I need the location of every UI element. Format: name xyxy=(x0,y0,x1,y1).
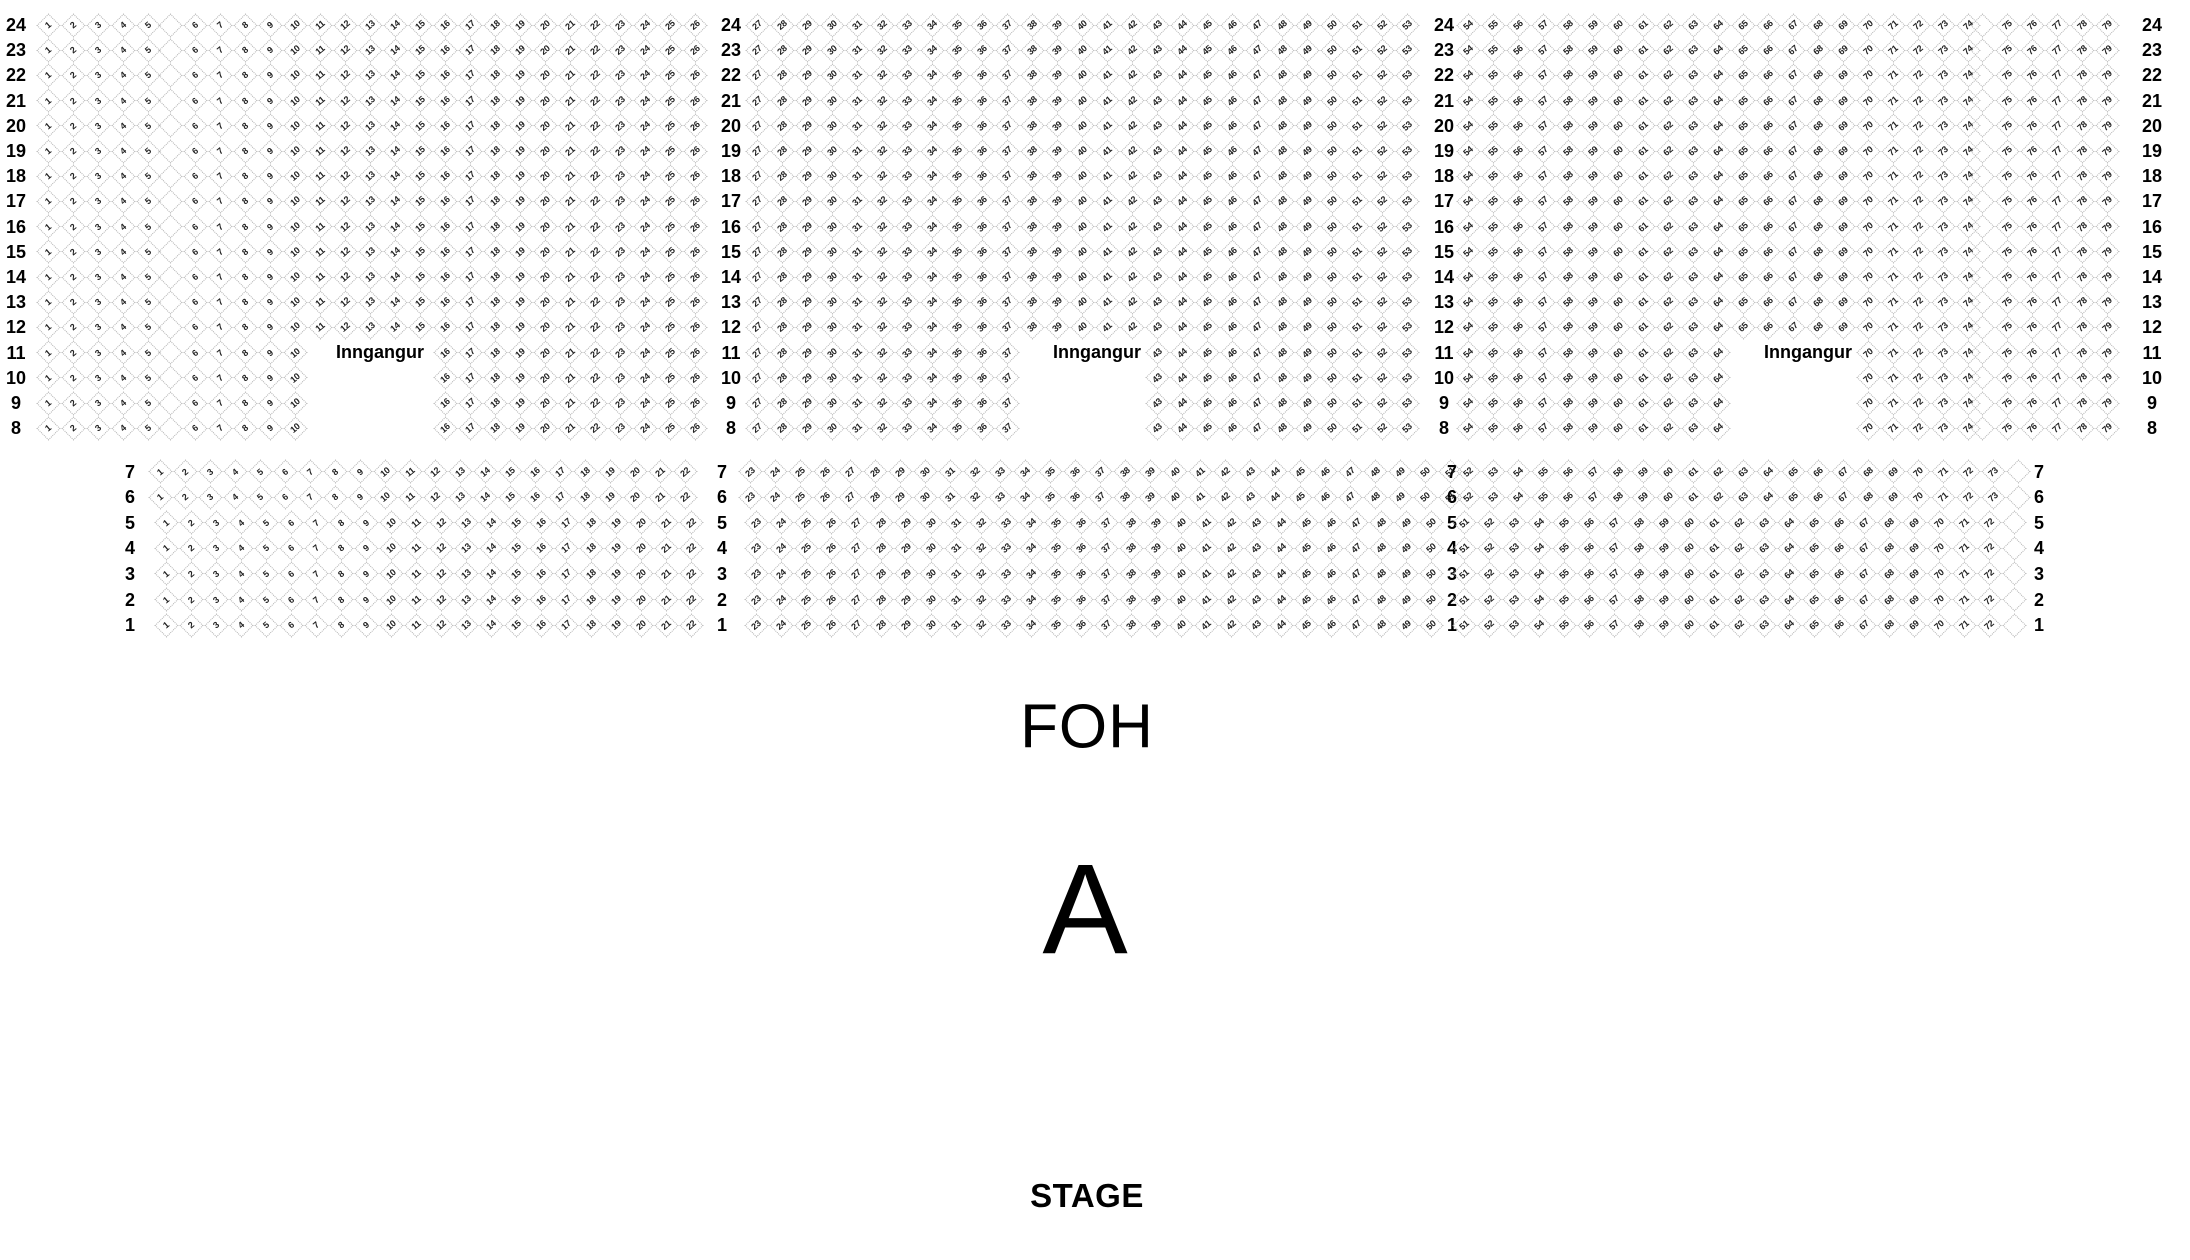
seat[interactable]: 60 xyxy=(1656,485,1680,509)
seat[interactable]: 52 xyxy=(1456,485,1480,509)
seat[interactable]: 13 xyxy=(358,315,382,339)
entrance-label: Inngangur xyxy=(1022,342,1172,363)
empty-seat-outline xyxy=(2006,485,2030,509)
seat[interactable]: 45 xyxy=(1195,416,1219,440)
empty-seat-outline xyxy=(158,164,182,188)
empty-seat-outline xyxy=(1970,89,1994,113)
seat[interactable]: 15 xyxy=(498,485,522,509)
seat[interactable]: 22 xyxy=(583,416,607,440)
seat[interactable]: 52 xyxy=(1370,416,1394,440)
seat-diamond xyxy=(2002,511,2026,535)
seat[interactable]: 63 xyxy=(1681,416,1705,440)
seat-diamond xyxy=(158,139,182,163)
seat[interactable]: 20 xyxy=(533,416,557,440)
seat[interactable]: 72 xyxy=(1956,485,1980,509)
seat[interactable]: 18 xyxy=(573,485,597,509)
seat[interactable]: 9 xyxy=(258,416,282,440)
empty-seat-outline xyxy=(158,366,182,390)
seat[interactable]: 35 xyxy=(1038,485,1062,509)
row-label: 14 xyxy=(2134,267,2170,287)
seat[interactable]: 51 xyxy=(1345,416,1369,440)
seat[interactable]: 34 xyxy=(920,416,944,440)
seat[interactable]: 23 xyxy=(738,485,762,509)
row-label: 13 xyxy=(2134,292,2170,312)
seat-diamond xyxy=(158,189,182,213)
seat[interactable]: 72 xyxy=(1906,416,1930,440)
seat[interactable]: 2 xyxy=(173,485,197,509)
seat[interactable]: 75 xyxy=(1995,416,2019,440)
seat-diamond xyxy=(1970,215,1994,239)
seat[interactable]: 64 xyxy=(1706,416,1730,440)
seat-diamond xyxy=(1970,265,1994,289)
seat[interactable]: 47 xyxy=(1245,416,1269,440)
seat[interactable]: 66 xyxy=(1806,485,1830,509)
seat[interactable]: 50 xyxy=(1320,416,1344,440)
empty-seat-outline xyxy=(1970,139,1994,163)
seat[interactable]: 15 xyxy=(408,315,432,339)
seat-diamond xyxy=(2002,536,2026,560)
row-label: 21 xyxy=(0,91,34,111)
seat-map: 2424242412345678910111213141516171819202… xyxy=(0,0,2190,1260)
seat-diamond xyxy=(158,416,182,440)
seat-diamond xyxy=(158,89,182,113)
seat[interactable]: 22 xyxy=(673,485,697,509)
row-label: 19 xyxy=(2134,141,2170,161)
seat-number: 10 xyxy=(278,411,312,445)
seat[interactable]: 78 xyxy=(2070,416,2094,440)
seat[interactable]: 67 xyxy=(1781,315,1805,339)
seat[interactable]: 10 xyxy=(283,416,307,440)
seat[interactable]: 32 xyxy=(963,485,987,509)
seat[interactable]: 49 xyxy=(1295,416,1319,440)
seat[interactable]: 62 xyxy=(1706,485,1730,509)
seat[interactable]: 24 xyxy=(763,485,787,509)
row-label: 8 xyxy=(2134,418,2170,438)
seat-diamond xyxy=(158,13,182,37)
row-label: 12 xyxy=(0,317,34,337)
seat-diamond xyxy=(2006,459,2030,483)
seat[interactable]: 63 xyxy=(1731,485,1755,509)
seat[interactable]: 48 xyxy=(1363,485,1387,509)
seat-diamond xyxy=(158,114,182,138)
seat-diamond xyxy=(1970,114,1994,138)
seat[interactable]: 58 xyxy=(1606,485,1630,509)
empty-seat-outline xyxy=(158,13,182,37)
seat[interactable]: 8 xyxy=(233,416,257,440)
seat[interactable]: 45 xyxy=(1288,485,1312,509)
empty-seat-outline xyxy=(1970,215,1994,239)
row-label: 5 xyxy=(2021,513,2057,533)
seat[interactable]: 38 xyxy=(1113,485,1137,509)
seat[interactable]: 39 xyxy=(1045,315,1069,339)
row-label: 19 xyxy=(0,141,34,161)
seat-diamond xyxy=(1970,38,1994,62)
seat[interactable]: 27 xyxy=(745,416,769,440)
seat[interactable]: 47 xyxy=(1338,485,1362,509)
seat[interactable]: 59 xyxy=(1631,485,1655,509)
row-label: 7 xyxy=(112,462,148,482)
seat[interactable]: 69 xyxy=(1881,485,1905,509)
seat[interactable]: 13 xyxy=(448,485,472,509)
seat[interactable]: 14 xyxy=(473,485,497,509)
row-label: 24 xyxy=(0,15,34,35)
empty-seat-outline xyxy=(1970,290,1994,314)
seat[interactable]: 56 xyxy=(1556,485,1580,509)
row-label: 5 xyxy=(112,513,148,533)
empty-seat-outline xyxy=(1970,341,1994,365)
seat[interactable]: 50 xyxy=(1413,485,1437,509)
seat[interactable]: 53 xyxy=(1395,416,1419,440)
row-label: 12 xyxy=(2134,317,2170,337)
seat-diamond xyxy=(1970,391,1994,415)
seat[interactable]: 56 xyxy=(1506,416,1530,440)
empty-seat-outline xyxy=(1970,38,1994,62)
row-label: 15 xyxy=(0,242,34,262)
seat[interactable]: 1 xyxy=(148,485,172,509)
seat[interactable]: 16 xyxy=(433,416,457,440)
seat[interactable]: 12 xyxy=(423,485,447,509)
seat[interactable]: 42 xyxy=(1120,315,1144,339)
seat-diamond xyxy=(1970,240,1994,264)
seat[interactable]: 12 xyxy=(333,315,357,339)
empty-seat-outline xyxy=(1970,366,1994,390)
seat-diamond xyxy=(158,366,182,390)
row-label: 20 xyxy=(0,116,34,136)
empty-seat-outline xyxy=(158,315,182,339)
seat[interactable]: 40 xyxy=(1070,315,1094,339)
empty-seat-outline xyxy=(158,38,182,62)
seat[interactable]: 62 xyxy=(1656,416,1680,440)
empty-seat-outline xyxy=(158,416,182,440)
empty-seat-outline xyxy=(2002,536,2026,560)
seat[interactable]: 37 xyxy=(1088,485,1112,509)
seat-number: 64 xyxy=(1701,411,1735,445)
row-label: 24 xyxy=(2134,15,2170,35)
seat[interactable]: 54 xyxy=(1456,416,1480,440)
row-label: 10 xyxy=(2134,368,2170,388)
empty-seat-outline xyxy=(1970,240,1994,264)
seat-diamond xyxy=(1970,139,1994,163)
row-label: 11 xyxy=(2134,343,2170,363)
empty-seat-outline xyxy=(2002,511,2026,535)
empty-seat-outline xyxy=(1970,391,1994,415)
seat[interactable]: 38 xyxy=(1020,315,1044,339)
empty-seat-outline xyxy=(158,139,182,163)
seat[interactable]: 17 xyxy=(548,485,572,509)
seat[interactable]: 5 xyxy=(136,416,160,440)
seat[interactable]: 4 xyxy=(223,485,247,509)
empty-seat-outline xyxy=(158,391,182,415)
seat[interactable]: 48 xyxy=(1270,416,1294,440)
row-label: 11 xyxy=(0,343,34,363)
row-label: 21 xyxy=(2134,91,2170,111)
row-label: 13 xyxy=(0,292,34,312)
row-label: 6 xyxy=(112,487,148,507)
seat-diamond xyxy=(158,63,182,87)
seat[interactable]: 8 xyxy=(323,485,347,509)
seat-diamond xyxy=(158,215,182,239)
seat-diamond xyxy=(1970,89,1994,113)
seat[interactable]: 7 xyxy=(208,416,232,440)
seat-diamond xyxy=(1970,290,1994,314)
row-label: 4 xyxy=(112,538,148,558)
seat[interactable]: 26 xyxy=(813,485,837,509)
row-label: 3 xyxy=(112,564,148,584)
seat[interactable]: 71 xyxy=(1931,485,1955,509)
empty-seat-outline xyxy=(158,341,182,365)
seat[interactable]: 19 xyxy=(598,485,622,509)
seat[interactable]: 44 xyxy=(1263,485,1287,509)
row-label: 8 xyxy=(0,418,34,438)
seat[interactable]: 36 xyxy=(970,416,994,440)
seat[interactable]: 30 xyxy=(820,416,844,440)
seat[interactable]: 46 xyxy=(1313,485,1337,509)
seat-diamond xyxy=(158,164,182,188)
row-label: 14 xyxy=(0,267,34,287)
seat-diamond xyxy=(158,38,182,62)
entrance-label: Inngangur xyxy=(305,342,455,363)
row-label: 17 xyxy=(0,191,34,211)
seat[interactable]: 32 xyxy=(870,416,894,440)
seat[interactable]: 39 xyxy=(1138,485,1162,509)
seat[interactable]: 4 xyxy=(111,416,135,440)
seat-diamond xyxy=(1970,315,1994,339)
empty-seat-outline xyxy=(1970,13,1994,37)
seat[interactable]: 66 xyxy=(1756,315,1780,339)
seat[interactable]: 43 xyxy=(1145,416,1169,440)
seat[interactable]: 27 xyxy=(838,485,862,509)
row-label: 16 xyxy=(0,217,34,237)
empty-seat-outline xyxy=(1970,164,1994,188)
seat[interactable]: 26 xyxy=(683,416,707,440)
seat[interactable]: 20 xyxy=(623,485,647,509)
row-label: 3 xyxy=(2021,564,2057,584)
seat[interactable]: 3 xyxy=(198,485,222,509)
empty-seat-outline xyxy=(1970,63,1994,87)
seat[interactable]: 53 xyxy=(1481,485,1505,509)
empty-seat-outline xyxy=(158,265,182,289)
seat[interactable]: 34 xyxy=(1013,485,1037,509)
seat[interactable]: 18 xyxy=(483,416,507,440)
seat[interactable]: 79 xyxy=(2095,416,2119,440)
empty-seat-outline xyxy=(2006,460,2030,484)
row-label: 18 xyxy=(0,166,34,186)
seat-diamond xyxy=(2006,485,2030,509)
empty-seat-outline xyxy=(1970,416,1994,440)
seat[interactable]: 58 xyxy=(1556,416,1580,440)
seat-diamond xyxy=(158,240,182,264)
seat[interactable]: 70 xyxy=(1856,416,1880,440)
seat[interactable]: 3 xyxy=(86,416,110,440)
empty-seat-outline xyxy=(158,89,182,113)
row-label: 20 xyxy=(2134,116,2170,136)
seat-diamond xyxy=(1970,164,1994,188)
seat[interactable]: 64 xyxy=(1756,485,1780,509)
seat[interactable]: 61 xyxy=(1631,416,1655,440)
seat[interactable]: 28 xyxy=(863,485,887,509)
empty-seat-outline xyxy=(1970,315,1994,339)
row-label: 3 xyxy=(704,564,740,584)
seat[interactable]: 60 xyxy=(1606,416,1630,440)
seat-diamond xyxy=(1970,63,1994,87)
seat[interactable]: 6 xyxy=(183,416,207,440)
seat[interactable]: 37 xyxy=(995,416,1019,440)
row-label: 18 xyxy=(2134,166,2170,186)
seat-diamond xyxy=(158,265,182,289)
seat[interactable]: 43 xyxy=(1238,485,1262,509)
seat[interactable]: 11 xyxy=(308,315,332,339)
empty-seat-outline xyxy=(158,215,182,239)
seat[interactable]: 46 xyxy=(1220,416,1244,440)
seat[interactable]: 25 xyxy=(658,416,682,440)
row-label: 15 xyxy=(2134,242,2170,262)
seat[interactable]: 14 xyxy=(383,315,407,339)
seat[interactable]: 68 xyxy=(1806,315,1830,339)
seat[interactable]: 76 xyxy=(2020,416,2044,440)
seat[interactable]: 57 xyxy=(1581,485,1605,509)
seat[interactable]: 59 xyxy=(1581,416,1605,440)
row-label: 22 xyxy=(0,65,34,85)
seat[interactable]: 31 xyxy=(938,485,962,509)
seat-diamond xyxy=(158,341,182,365)
seat[interactable]: 33 xyxy=(988,485,1012,509)
seat[interactable]: 28 xyxy=(770,416,794,440)
seat[interactable]: 65 xyxy=(1781,485,1805,509)
seat[interactable]: 41 xyxy=(1095,315,1119,339)
row-label: 9 xyxy=(0,393,34,413)
seat[interactable]: 69 xyxy=(1831,315,1855,339)
seat[interactable]: 73 xyxy=(1931,416,1955,440)
seat[interactable]: 65 xyxy=(1731,315,1755,339)
empty-seat-outline xyxy=(158,114,182,138)
seat-number: 79 xyxy=(2090,411,2124,445)
seat-number: 22 xyxy=(668,480,702,514)
empty-seat-outline xyxy=(158,240,182,264)
seat-diamond xyxy=(158,315,182,339)
seat[interactable]: 21 xyxy=(648,485,672,509)
seat[interactable]: 61 xyxy=(1681,485,1705,509)
row-label: 4 xyxy=(704,538,740,558)
seat[interactable]: 68 xyxy=(1856,485,1880,509)
seat[interactable]: 44 xyxy=(1170,416,1194,440)
seat[interactable]: 42 xyxy=(1213,485,1237,509)
seat[interactable]: 9 xyxy=(348,485,372,509)
seat-number: 37 xyxy=(990,411,1024,445)
empty-seat-outline xyxy=(1970,114,1994,138)
seat-number: 53 xyxy=(1390,411,1424,445)
empty-seat-outline xyxy=(158,189,182,213)
seat[interactable]: 54 xyxy=(1506,485,1530,509)
seat[interactable]: 49 xyxy=(1388,485,1412,509)
seat[interactable]: 25 xyxy=(788,485,812,509)
seat[interactable]: 41 xyxy=(1188,485,1212,509)
seat[interactable]: 5 xyxy=(248,485,272,509)
seat[interactable]: 17 xyxy=(458,416,482,440)
seat[interactable]: 30 xyxy=(913,485,937,509)
seat[interactable]: 7 xyxy=(298,485,322,509)
empty-seat-outline xyxy=(158,290,182,314)
seat[interactable]: 16 xyxy=(523,485,547,509)
seat[interactable]: 6 xyxy=(273,485,297,509)
seat[interactable]: 36 xyxy=(1063,485,1087,509)
row-label: 5 xyxy=(704,513,740,533)
seat[interactable]: 73 xyxy=(1981,485,2005,509)
seat[interactable]: 35 xyxy=(945,416,969,440)
seat[interactable]: 77 xyxy=(2045,416,2069,440)
row-label: 23 xyxy=(0,40,34,60)
empty-seat-outline xyxy=(1970,265,1994,289)
seat[interactable]: 29 xyxy=(795,416,819,440)
empty-seat-outline xyxy=(1970,189,1994,213)
seat[interactable]: 19 xyxy=(508,416,532,440)
seat-diamond xyxy=(1970,416,1994,440)
seat[interactable]: 55 xyxy=(1481,416,1505,440)
seat-number: 26 xyxy=(678,411,712,445)
seat-diamond xyxy=(1970,341,1994,365)
seat[interactable]: 22 xyxy=(679,562,703,586)
seat[interactable]: 29 xyxy=(888,485,912,509)
row-label: 22 xyxy=(2134,65,2170,85)
seat[interactable]: 31 xyxy=(845,416,869,440)
seat[interactable]: 71 xyxy=(1881,416,1905,440)
entrance-label: Inngangur xyxy=(1733,342,1883,363)
empty-seat-outline xyxy=(158,63,182,87)
row-label: 23 xyxy=(2134,40,2170,60)
seat[interactable]: 55 xyxy=(1531,485,1555,509)
seat[interactable]: 40 xyxy=(1163,485,1187,509)
row-label: 16 xyxy=(2134,217,2170,237)
seat[interactable]: 24 xyxy=(633,416,657,440)
row-label: 17 xyxy=(2134,191,2170,211)
seat-diamond xyxy=(1970,13,1994,37)
row-label: 9 xyxy=(2134,393,2170,413)
seat[interactable]: 67 xyxy=(1831,485,1855,509)
seat-diamond xyxy=(1970,189,1994,213)
seat-diamond xyxy=(1970,366,1994,390)
seat[interactable]: 23 xyxy=(608,416,632,440)
seat[interactable]: 21 xyxy=(558,416,582,440)
seat[interactable]: 33 xyxy=(895,416,919,440)
seat-diamond xyxy=(158,391,182,415)
seat[interactable]: 1 xyxy=(36,416,60,440)
seat-diamond xyxy=(158,290,182,314)
seat[interactable]: 2 xyxy=(61,416,85,440)
seat[interactable]: 11 xyxy=(398,485,422,509)
seat[interactable]: 10 xyxy=(373,485,397,509)
seat[interactable]: 57 xyxy=(1531,416,1555,440)
row-label: 10 xyxy=(0,368,34,388)
seat[interactable]: 70 xyxy=(1906,485,1930,509)
